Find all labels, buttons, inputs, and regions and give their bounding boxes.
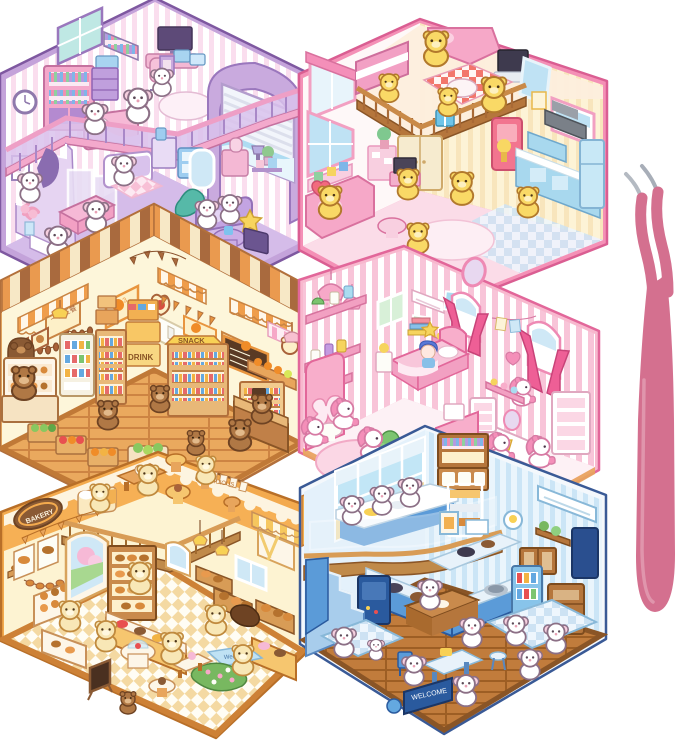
- svg-text:SNACK: SNACK: [178, 336, 205, 345]
- svg-text:DRINK: DRINK: [128, 353, 154, 362]
